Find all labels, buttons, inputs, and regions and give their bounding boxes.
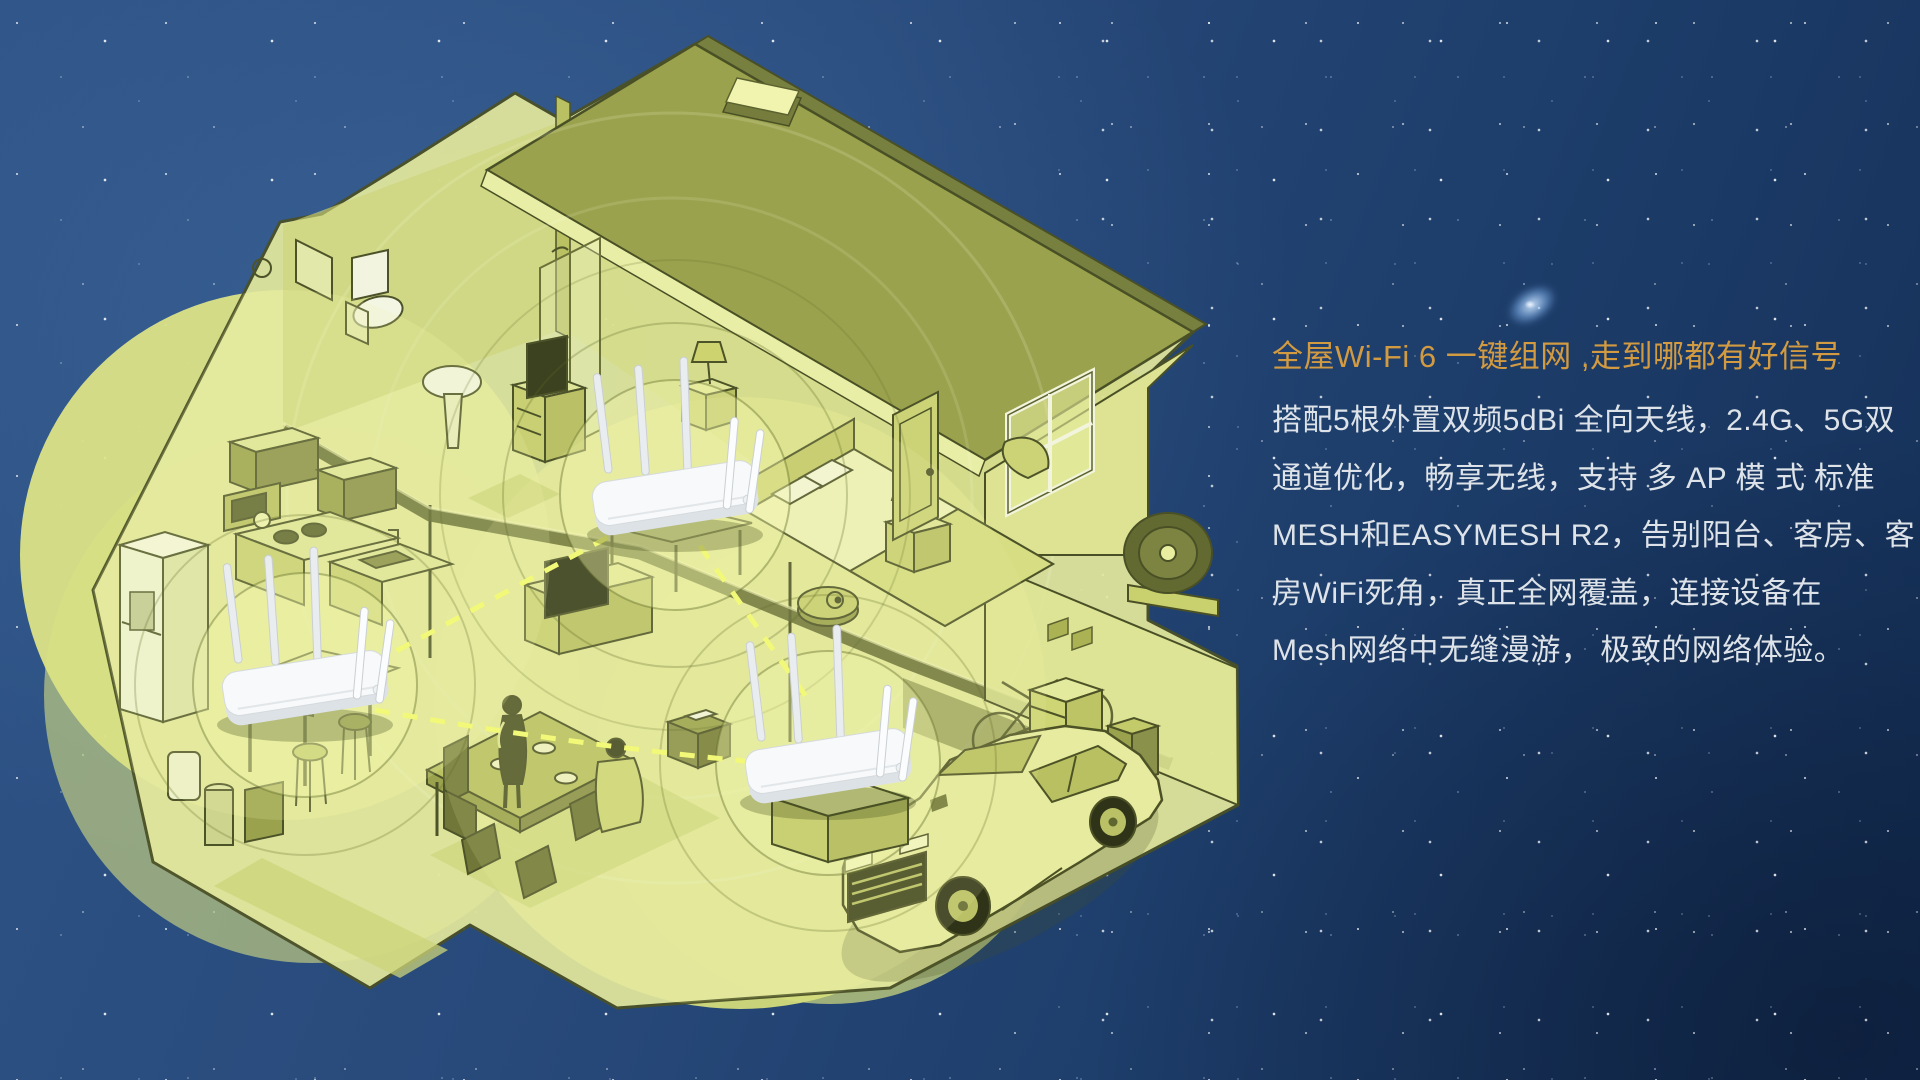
feature-line: MESH和EASYMESH R2，告别阳台、客房、客 xyxy=(1272,507,1918,565)
feature-line: Mesh网络中无缝漫游， 极致的网络体验。 xyxy=(1272,622,1918,680)
satellite-dish-icon xyxy=(1124,513,1218,616)
feature-text-panel: 全屋Wi-Fi 6 一键组网 ,走到哪都有好信号 搭配5根外置双频5dBi 全向… xyxy=(1272,334,1918,680)
feature-line: 房WiFi死角，真正全网覆盖，连接设备在 xyxy=(1272,565,1918,623)
feature-line: 搭配5根外置双频5dBi 全向天线，2.4G、5G双 xyxy=(1272,392,1918,450)
hero-banner: 全屋Wi-Fi 6 一键组网 ,走到哪都有好信号 搭配5根外置双频5dBi 全向… xyxy=(0,0,1920,1080)
headline: 全屋Wi-Fi 6 一键组网 ,走到哪都有好信号 xyxy=(1272,334,1918,380)
car-wheel-rear xyxy=(1090,797,1136,847)
feature-line: 通道优化，畅享无线，支持 多 AP 模 式 标准 xyxy=(1272,450,1918,508)
